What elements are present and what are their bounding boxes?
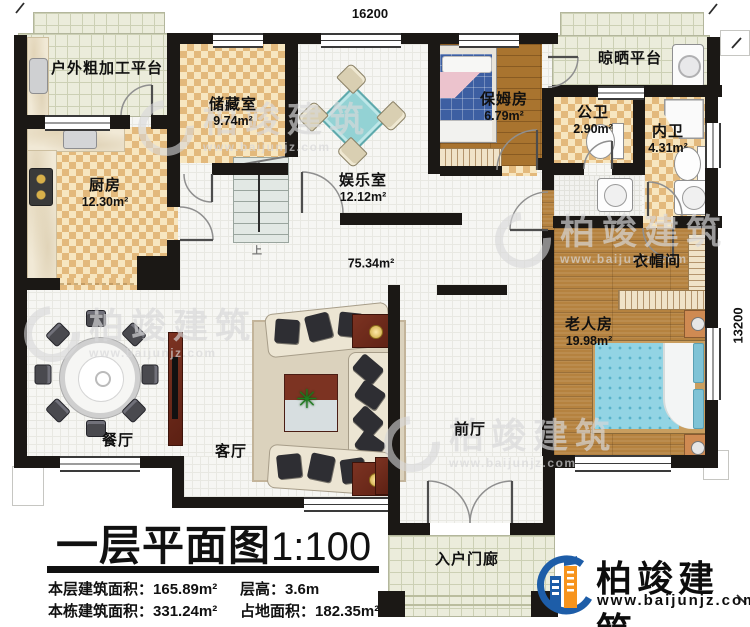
brand-name: 柏竣建筑 xyxy=(596,550,750,627)
room-label-entry-porch: 入户门廊 xyxy=(435,551,499,569)
door-arc-storage xyxy=(184,174,212,202)
dimension-top: 16200 xyxy=(340,6,400,21)
stat-floor-height: 层高：3.6m xyxy=(240,578,319,599)
room-label-storage: 储藏室9.74m² xyxy=(209,96,257,128)
stat-footprint-area: 占地面积：182.35m² xyxy=(240,600,379,621)
page-title: 一层平面图1:100 xyxy=(56,512,371,573)
door-arc-drying xyxy=(548,57,578,87)
stat-floor-area: 本层建筑面积：165.89m² xyxy=(48,578,217,599)
room-label-front-hall: 前厅 xyxy=(454,421,486,439)
room-label-public-bath: 公卫2.90m² xyxy=(573,104,613,136)
door-arc-inner-bath xyxy=(648,182,682,216)
room-label-drying-platform: 晾晒平台 xyxy=(598,50,662,68)
room-label-gameroom: 娱乐室12.12m² xyxy=(339,172,387,204)
door-arc-elder xyxy=(510,192,548,230)
dimension-tick xyxy=(732,38,741,48)
title-scale: 1:100 xyxy=(271,525,371,569)
room-label-inner-bath: 内卫4.31m² xyxy=(648,123,688,155)
door-arc-platform xyxy=(121,85,152,115)
room-label-kitchen: 厨房12.30m² xyxy=(82,177,129,209)
stat-building-area: 本栋建筑面积：331.24m² xyxy=(48,600,217,621)
title-text: 一层平面图 xyxy=(56,522,271,569)
door-arc-gameroom xyxy=(302,172,343,213)
room-label-outdoor-platform: 户外粗加工平台 xyxy=(51,60,163,78)
brand-site: www.baijunjz.com xyxy=(597,592,750,609)
room-label-living: 客厅 xyxy=(215,443,247,461)
room-label-nanny: 保姆房6.79m² xyxy=(480,91,528,123)
brand-logo-icon xyxy=(534,552,592,624)
dimension-tick xyxy=(709,4,717,14)
floor-plan: 上 xyxy=(0,0,750,627)
door-arc-nanny xyxy=(497,130,537,170)
door-arc-public-bath xyxy=(584,141,612,169)
door-arc-entry-right xyxy=(470,481,512,523)
door-arc-entry-left xyxy=(428,481,470,523)
title-underline xyxy=(47,566,379,573)
room-label-open-area: 75.34m² xyxy=(348,257,395,272)
room-label-closet: 衣帽间 xyxy=(633,253,681,271)
dimension-right: 13200 xyxy=(731,298,746,354)
dimension-tick xyxy=(16,3,24,13)
door-arc-kitchen xyxy=(180,207,213,240)
room-label-elder: 老人房19.98m² xyxy=(565,316,613,348)
room-label-dining: 餐厅 xyxy=(102,432,134,450)
